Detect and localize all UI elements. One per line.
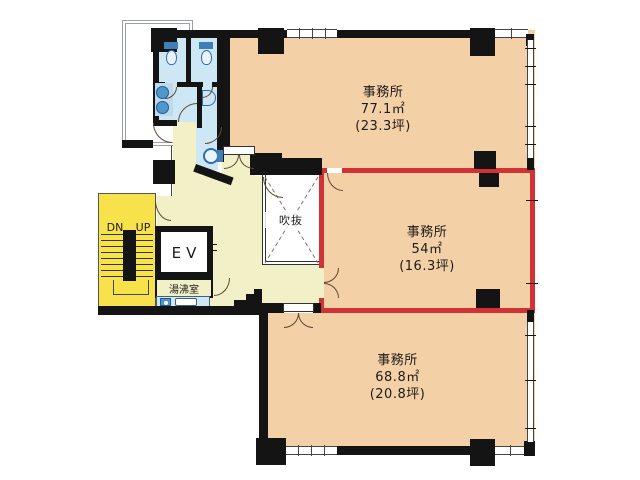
elevator-door-mark xyxy=(207,244,217,245)
column-bottom-right xyxy=(470,439,495,466)
kitchenette-room: 湯沸室 xyxy=(155,278,213,298)
toilet-fixture-tank xyxy=(164,42,178,49)
window-tick xyxy=(526,200,538,201)
window-tick xyxy=(525,126,536,127)
wall-balcony-bottom xyxy=(122,140,153,148)
column-corridor-mid xyxy=(153,160,175,184)
window-tick xyxy=(525,48,536,49)
floor-plan: DN UP EV 湯沸室 吹抜 xyxy=(0,0,640,480)
wall-step-3 xyxy=(254,289,262,298)
toilet-fixture-bowl xyxy=(201,50,212,65)
column-above-red xyxy=(474,151,496,169)
office-top-label: 事務所 77.1㎡ (23.3坪) xyxy=(323,84,443,135)
atrium-label: 吹抜 xyxy=(263,212,319,228)
window-tick xyxy=(526,283,538,284)
window-tick xyxy=(525,335,536,336)
wall-right-stub-bottom xyxy=(527,310,534,322)
office-bottom-tsubo: (20.8坪) xyxy=(335,386,460,403)
kitchenette-label: 湯沸室 xyxy=(157,281,211,296)
wall-right-stub xyxy=(527,158,534,170)
toilet-fixture-bowl xyxy=(166,50,177,65)
column-top-right xyxy=(470,28,495,56)
stove-icon xyxy=(160,298,171,306)
column-office-middle-top xyxy=(479,173,499,187)
sink-basin-icon xyxy=(156,101,169,114)
office-top-tsubo: (23.3坪) xyxy=(323,118,443,135)
wall-bottom-office-left xyxy=(259,303,268,443)
office-middle-name: 事務所 xyxy=(367,224,487,241)
office-middle-tsubo: (16.3坪) xyxy=(367,258,487,275)
office-top-name: 事務所 xyxy=(323,84,443,101)
window-tick xyxy=(525,428,536,429)
wall-corridor-bottom xyxy=(98,306,234,315)
stair-center-rail xyxy=(123,230,136,281)
column-corridor-top xyxy=(250,153,282,175)
window-office-bottom-right xyxy=(527,320,534,442)
window-tick xyxy=(525,84,536,85)
door-lintel-office-bottom xyxy=(283,303,314,312)
window-tick xyxy=(525,66,536,67)
window-top-1 xyxy=(287,29,337,38)
door-lintel-office-top xyxy=(223,146,255,155)
stair-landing-line xyxy=(113,280,149,295)
window-tick xyxy=(525,144,536,145)
office-top-area: 77.1㎡ xyxy=(323,101,443,118)
stairwell: DN UP xyxy=(98,193,156,314)
window-tick xyxy=(525,380,536,381)
window-bottom-1 xyxy=(286,446,337,455)
wall-top-2 xyxy=(337,30,474,38)
wall-stall-divider xyxy=(186,38,191,84)
wall-toilet-mid-3 xyxy=(212,82,223,87)
elevator-label: EV xyxy=(161,244,207,262)
toilet-fixture-tank xyxy=(199,42,213,49)
window-office-top-right xyxy=(527,40,534,170)
column-bottom-left xyxy=(256,438,286,465)
elevator-door-mark xyxy=(207,250,217,251)
sink-icon xyxy=(175,298,197,306)
wall-corner-bottomright xyxy=(524,441,535,456)
window-top-2 xyxy=(495,29,528,38)
office-bottom-area: 68.8㎡ xyxy=(335,369,460,386)
wall-bottom-office-top-2 xyxy=(313,303,321,313)
office-middle-area: 54㎡ xyxy=(367,241,487,258)
office-middle-label: 事務所 54㎡ (16.3坪) xyxy=(367,224,487,275)
window-bottom-2 xyxy=(495,446,525,455)
wall-office-top-left xyxy=(223,30,230,150)
wall-bottom xyxy=(337,446,472,455)
elevator-shaft: EV xyxy=(155,226,213,278)
column-top-left xyxy=(258,28,284,54)
office-bottom-name: 事務所 xyxy=(335,352,460,369)
office-bottom-label: 事務所 68.8㎡ (20.8坪) xyxy=(335,352,460,403)
column-office-middle-bottom xyxy=(476,289,500,308)
